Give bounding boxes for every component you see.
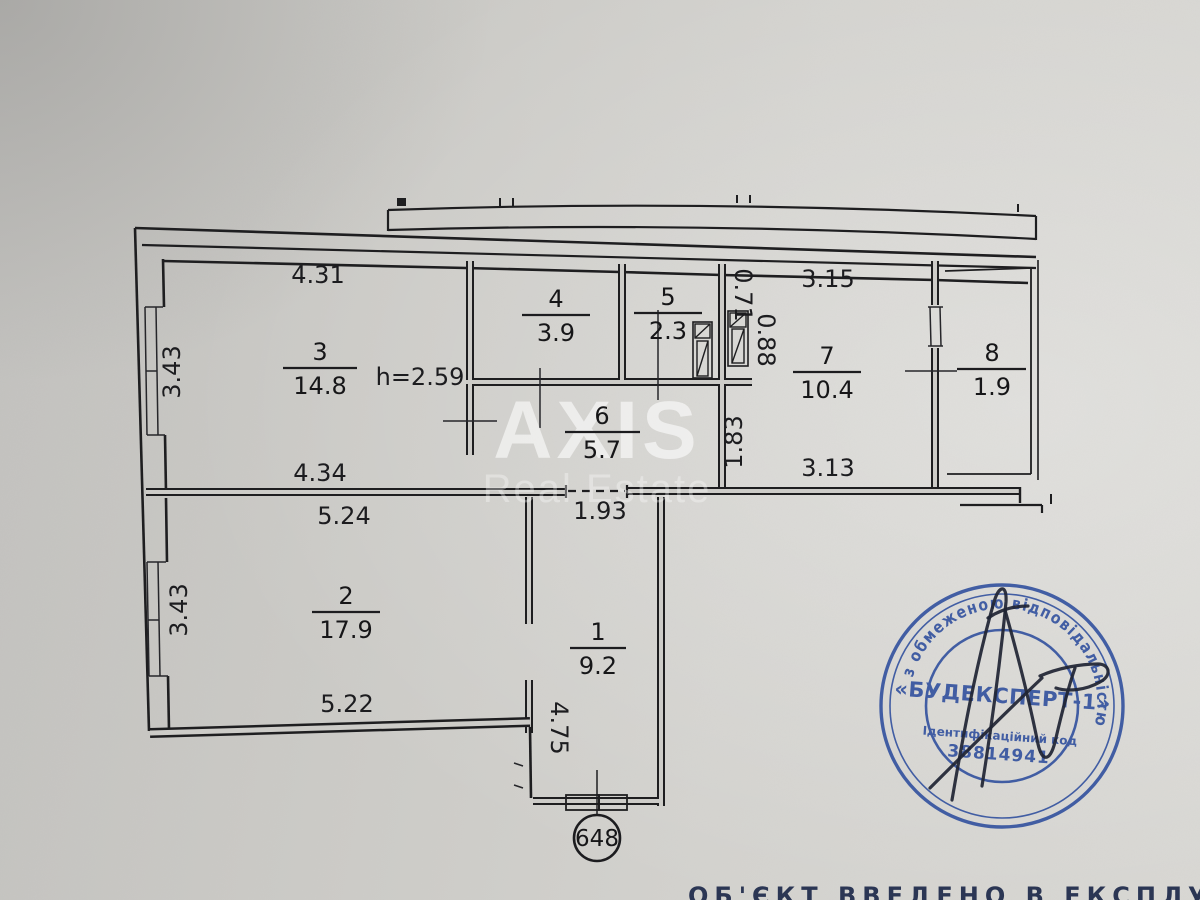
- dim-room7-left: 1.83: [720, 415, 748, 468]
- room-6-number: 6: [594, 402, 609, 430]
- room-8-area: 1.9: [973, 373, 1011, 401]
- dim-room3-bottom: 4.34: [293, 459, 346, 487]
- room-5-number: 5: [660, 283, 675, 311]
- room-4-area: 3.9: [537, 319, 575, 347]
- floor-plan-svg: AXIS Real Estate 3 14.8 4 3.9 5 2.3 6 5.…: [0, 0, 1200, 900]
- room-2-area: 17.9: [319, 616, 372, 644]
- room-4-number: 4: [548, 285, 563, 313]
- dim-room3-left: 3.43: [158, 345, 186, 398]
- room-3-number: 3: [312, 338, 327, 366]
- dim-room2-bottom: 5.22: [320, 690, 373, 718]
- room-8-number: 8: [984, 339, 999, 367]
- dim-corridor-left: 4.75: [545, 701, 573, 754]
- room-7-area: 10.4: [800, 376, 853, 404]
- unit-number: 648: [575, 826, 619, 852]
- dim-hall-opening: 1.93: [573, 497, 626, 525]
- dim-room7-top: 3.15: [801, 265, 854, 293]
- room-3-area: 14.8: [293, 372, 346, 400]
- room-6-area: 5.7: [583, 436, 621, 464]
- dim-room2-top: 5.24: [317, 502, 370, 530]
- room-1-number: 1: [590, 618, 605, 646]
- dim-room3-top: 4.31: [291, 261, 344, 289]
- scanned-floor-plan-page: { "page": { "paper_color": "#cdccc8", "c…: [0, 0, 1200, 900]
- balcony-tick-square: [397, 198, 406, 206]
- dim-room2-left: 3.43: [165, 583, 193, 636]
- dim-shaft-large: 0.88: [752, 313, 780, 366]
- room-5-area: 2.3: [649, 317, 687, 345]
- bottom-caption: ОБ'ЄКТ ВВЕДЕНО В ЕКСПЛУАТАЦІЮ:: [688, 882, 1200, 900]
- room-7-number: 7: [819, 342, 834, 370]
- room-1-area: 9.2: [579, 652, 617, 680]
- dim-room7-bottom: 3.13: [801, 454, 854, 482]
- room-2-number: 2: [338, 582, 353, 610]
- dim-ceiling-height: h=2.59: [376, 363, 465, 391]
